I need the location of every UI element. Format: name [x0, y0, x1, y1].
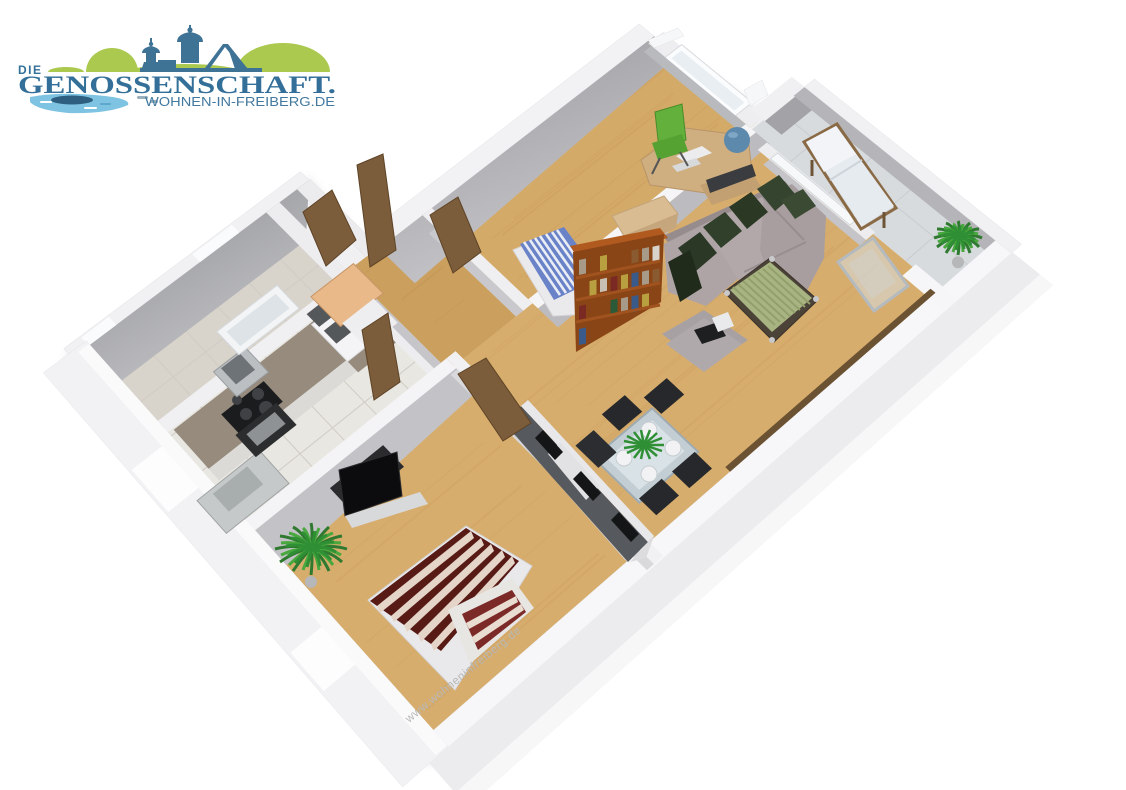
svg-text:WOHNEN-IN-FREIBERG.DE: WOHNEN-IN-FREIBERG.DE [145, 94, 335, 109]
